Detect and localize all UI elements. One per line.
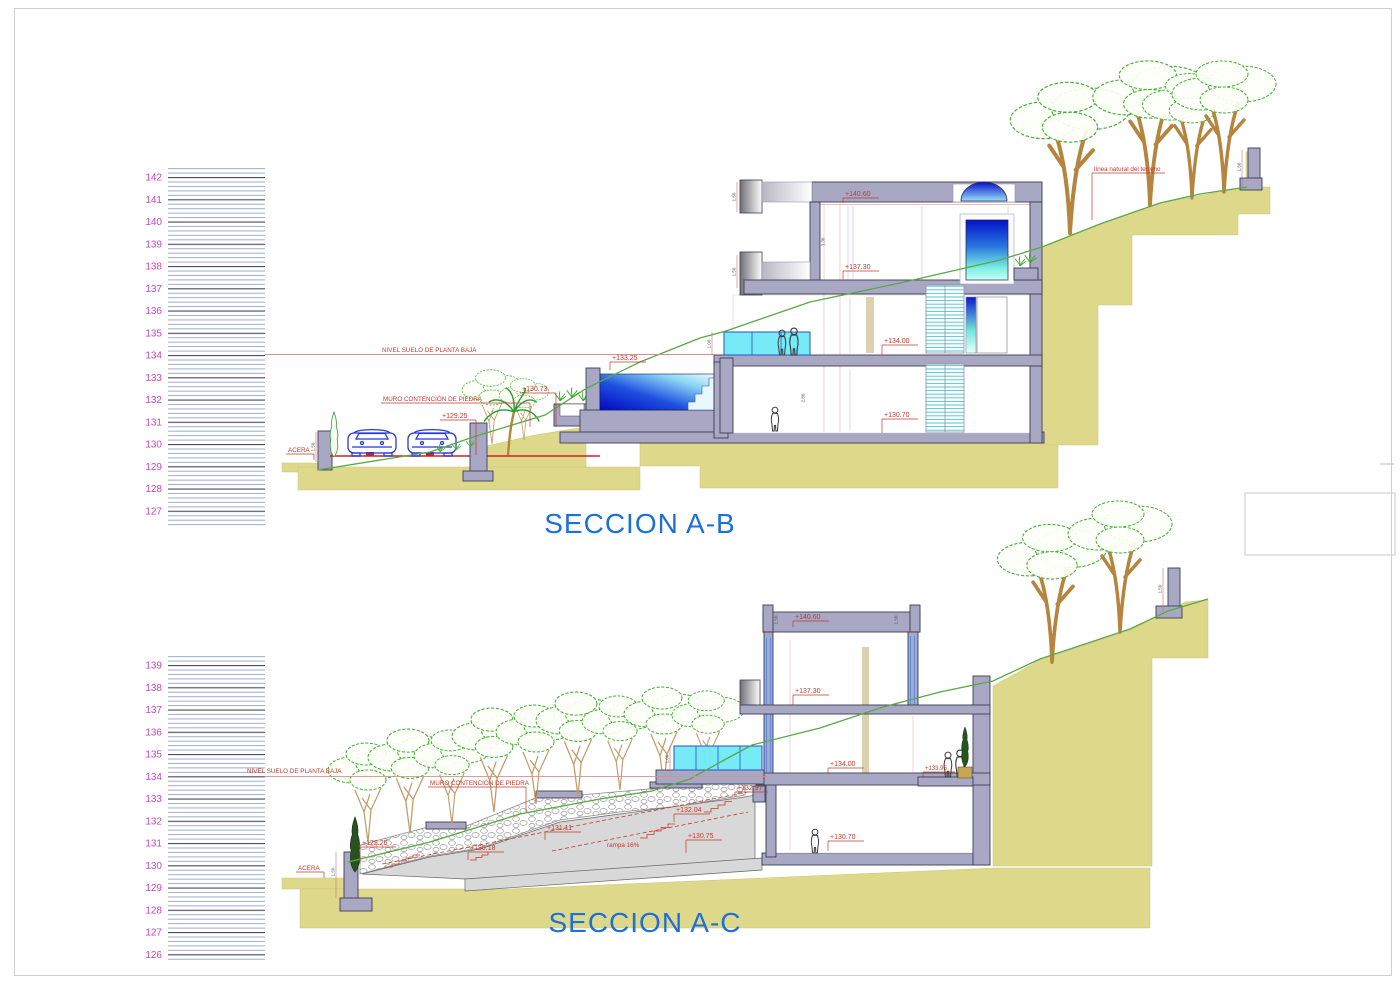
scale-number: 139 xyxy=(145,661,162,672)
scale-number: 137 xyxy=(145,705,162,716)
svg-text:1.50: 1.50 xyxy=(732,267,737,276)
svg-text:+132.97: +132.97 xyxy=(737,785,763,792)
section-ab-scale-numbers: 1421411401391381371361351341331321311301… xyxy=(145,173,162,518)
section-ab: 1421411401391381371361351341331321311301… xyxy=(145,61,1276,539)
svg-text:+140.60: +140.60 xyxy=(795,614,821,621)
scale-number: 130 xyxy=(145,861,162,872)
svg-text:1.00: 1.00 xyxy=(707,339,712,348)
svg-text:+137.30: +137.30 xyxy=(845,264,871,271)
section-ab-title: SECCION A-B xyxy=(544,508,735,539)
scale-number: 136 xyxy=(145,306,162,317)
dim-parapet-right: 1.50 xyxy=(894,615,899,624)
scale-number: 135 xyxy=(145,328,162,339)
section-ab-elevation-ruler: 1421411401391381371361351341331321311301… xyxy=(145,168,265,526)
scale-number: 138 xyxy=(145,262,162,273)
scale-number: 131 xyxy=(145,417,162,428)
scale-number: 139 xyxy=(145,239,162,250)
svg-text:ACERA: ACERA xyxy=(288,447,310,454)
svg-text:+132.04: +132.04 xyxy=(676,807,702,814)
svg-text:1.00: 1.00 xyxy=(665,754,670,763)
svg-text:+130.73: +130.73 xyxy=(522,386,548,393)
svg-text:+134.00: +134.00 xyxy=(884,338,910,345)
scale-number: 136 xyxy=(145,727,162,738)
svg-text:+133.95: +133.95 xyxy=(925,766,948,772)
balcony-eave xyxy=(740,680,760,707)
scale-number: 130 xyxy=(145,440,162,451)
section-ac-title: SECCION A-C xyxy=(548,907,741,938)
dim-wall-upper: 3.30 xyxy=(821,237,826,246)
scale-number: 137 xyxy=(145,284,162,295)
scale-number: 134 xyxy=(145,772,162,783)
svg-text:1.50: 1.50 xyxy=(732,192,737,201)
terrace-floor xyxy=(918,777,973,786)
scale-number: 131 xyxy=(145,839,162,850)
svg-text:1.50: 1.50 xyxy=(331,867,336,876)
section-ab-level-line: NIVEL SUELO DE PLANTA BAJA xyxy=(265,347,722,355)
section-ac-scale-numbers: 1391381371361351341331321311301291281271… xyxy=(145,661,162,961)
interior-column xyxy=(866,297,874,353)
scale-number: 129 xyxy=(145,883,162,894)
svg-text:+130.18: +130.18 xyxy=(470,845,496,852)
scale-number: 129 xyxy=(145,462,162,473)
dim-parapet-left: 1.50 xyxy=(774,615,779,624)
dim-muro: 1.50 xyxy=(311,432,317,462)
planter xyxy=(958,767,972,778)
scale-number: 138 xyxy=(145,683,162,694)
scale-number: 126 xyxy=(145,950,162,961)
section-ac-elevation-ruler: 1391381371361351341331321311301291281271… xyxy=(145,656,265,962)
dim-eave-upper: 1.50 xyxy=(732,182,738,212)
architectural-section-drawing: 1421411401391381371361351341331321311301… xyxy=(0,0,1400,989)
scale-number: 132 xyxy=(145,816,162,827)
dim-ret-wall: 1.50 xyxy=(1158,568,1164,612)
svg-text:+130.70: +130.70 xyxy=(884,412,910,419)
cypress-tree xyxy=(330,412,338,457)
svg-text:1.50: 1.50 xyxy=(774,615,779,624)
svg-text:línea natural del terreno: línea natural del terreno xyxy=(1094,166,1161,173)
scale-number: 133 xyxy=(145,373,162,384)
scale-number: 142 xyxy=(145,173,162,184)
section-ab-pool xyxy=(554,368,728,434)
svg-text:+130.70: +130.70 xyxy=(830,834,856,841)
scale-number: 127 xyxy=(145,506,162,517)
svg-text:1.50: 1.50 xyxy=(894,615,899,624)
nivel-suelo-label: NIVEL SUELO DE PLANTA BAJA xyxy=(382,347,477,354)
svg-text:+140.60: +140.60 xyxy=(845,191,871,198)
svg-text:ACERA: ACERA xyxy=(298,865,320,872)
svg-text:+133.25: +133.25 xyxy=(612,355,638,362)
section-ac: 1391381371361351341331321311301291281271… xyxy=(145,501,1208,962)
dim-eave-lower: 1.50 xyxy=(732,255,738,288)
cypress-tree xyxy=(350,817,359,872)
svg-text:+129.25: +129.25 xyxy=(442,413,468,420)
scale-number: 140 xyxy=(145,217,162,228)
svg-text:MURO CONTENCIÓN DE PIEDRA: MURO CONTENCIÓN DE PIEDRA xyxy=(383,394,483,403)
scale-number: 135 xyxy=(145,750,162,761)
svg-text:1.50: 1.50 xyxy=(1237,162,1242,171)
svg-text:+131.11: +131.11 xyxy=(547,825,572,832)
svg-text:1.50: 1.50 xyxy=(1158,584,1163,593)
scale-number: 133 xyxy=(145,794,162,805)
scale-number: 128 xyxy=(145,484,162,495)
svg-text:2.80: 2.80 xyxy=(801,393,806,402)
scale-number: 141 xyxy=(145,195,162,206)
roof-eave xyxy=(740,180,762,213)
svg-text:3.30: 3.30 xyxy=(821,237,826,246)
floor-slab-134 xyxy=(714,355,1042,366)
svg-text:+137.30: +137.30 xyxy=(795,688,821,695)
scale-number: 128 xyxy=(145,905,162,916)
svg-text:+129.25: +129.25 xyxy=(362,840,388,847)
svg-text:1.50: 1.50 xyxy=(311,442,316,451)
nivel-suelo-label: NIVEL SUELO DE PLANTA BAJA xyxy=(247,768,342,775)
acera-label: ACERA xyxy=(296,865,324,878)
rampa-label: rampa 16% xyxy=(607,842,640,849)
scale-number: 127 xyxy=(145,928,162,939)
window xyxy=(966,220,1008,280)
svg-text:+134.00: +134.00 xyxy=(830,761,856,768)
svg-text:rampa 16%: rampa 16% xyxy=(607,842,640,849)
section-ab-retaining-wall-right xyxy=(1240,148,1262,190)
dim-wall-lower: 2.80 xyxy=(801,393,806,402)
scale-number: 132 xyxy=(145,395,162,406)
door xyxy=(977,297,1007,353)
svg-text:MURO CONTENCIÓN DE PIEDRA: MURO CONTENCIÓN DE PIEDRA xyxy=(430,778,530,787)
scale-number: 134 xyxy=(145,351,162,362)
svg-text:+130.75: +130.75 xyxy=(688,833,714,840)
